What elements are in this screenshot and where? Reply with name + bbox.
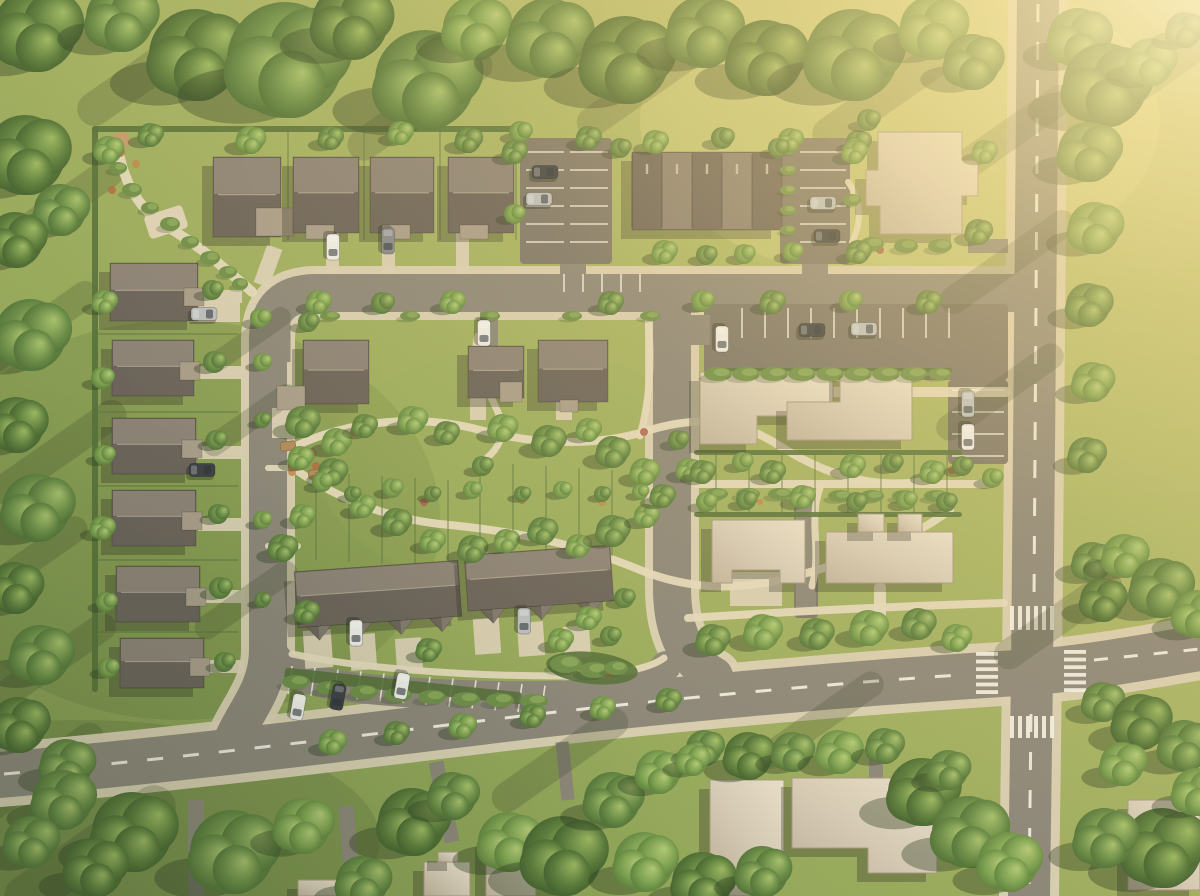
screenshot-root: aerial-neighborhood-render [0,0,1200,896]
sun-glow-overlay [0,0,1200,896]
aerial-site-plan-svg [0,0,1200,896]
lighting [0,0,1200,896]
aerial-render-figure: aerial-neighborhood-render [0,0,1200,896]
